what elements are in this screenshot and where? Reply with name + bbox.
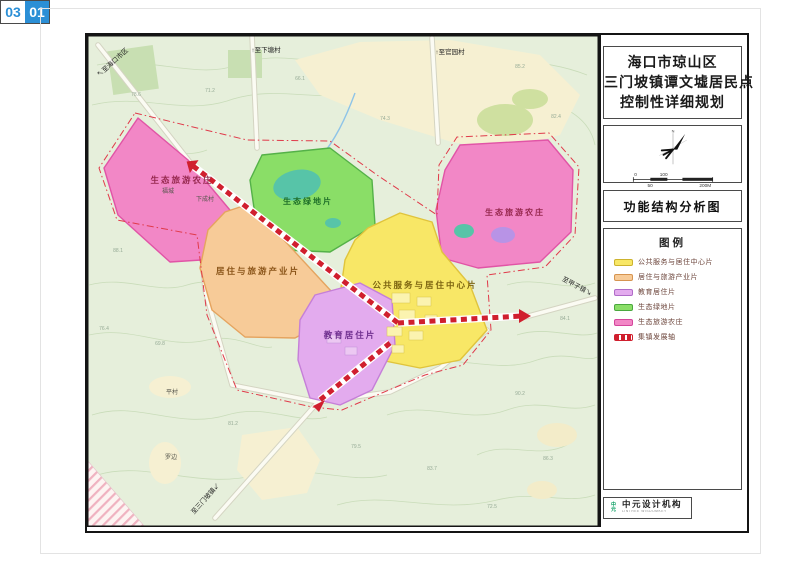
sheet-total: 03 [1,1,25,23]
svg-text:100: 100 [659,172,667,178]
scale-bar: 0 100 50 200M [625,171,721,188]
title-line-3: 控制性详细规划 [604,94,741,114]
village-label: 罗边 [165,453,177,461]
district-eco-farm-east [436,140,573,268]
elev-label: 71.2 [205,88,215,94]
elev-label: 76.4 [99,326,109,332]
legend-area-swatch [614,289,633,296]
elev-label: 90.2 [515,391,525,397]
legend-title: 图例 [604,235,741,250]
title-block: 海口市琼山区 三门坡镇谭文墟居民点 控制性详细规划 [603,46,742,119]
legend-area-swatch [614,304,633,311]
publisher-mark: 中元 [611,503,616,513]
road-label: ↑至下塘村 [251,45,281,54]
legend-item: 集镇发展轴 [614,333,741,341]
legend-item-label: 集镇发展轴 [638,332,676,342]
svg-text:50: 50 [647,183,653,188]
svg-text:200M: 200M [699,183,711,188]
elev-label: 83.7 [427,466,437,472]
drawing-name-box: 功能结构分析图 [603,190,742,222]
planning-map: 生态旅游农庄生态绿地片生态旅游农庄居住与旅游产业片公共服务与居住中心片教育居住片… [87,35,601,527]
elev-label: 88.1 [113,248,123,254]
elev-label: 84.1 [560,316,570,322]
region-label: 生态旅游农庄 [150,175,213,185]
legend-item: 生态绿地片 [614,303,741,311]
svg-text:N: N [671,128,674,133]
region-label: 居住与旅游产业片 [215,266,300,276]
legend-item: 教育居住片 [614,288,741,296]
village-label: 下成村 [196,195,214,203]
elev-label: 78.6 [131,92,141,98]
legend-axis-swatch [614,334,633,341]
drawing-name: 功能结构分析图 [623,198,721,215]
elev-label: 79.5 [351,444,361,450]
legend-area-swatch [614,319,633,326]
village-label: 福城 [162,187,174,195]
legend-item-label: 居住与旅游产业片 [638,272,698,282]
legend-item: 公共服务与居住中心片 [614,258,741,266]
map-canvas: 生态旅游农庄生态绿地片生态旅游农庄居住与旅游产业片公共服务与居住中心片教育居住片… [87,35,599,527]
elev-label: 85.2 [515,64,525,70]
publisher-subtitle: LINTREE WISDOMKEY [622,510,667,513]
legend-item-label: 生态绿地片 [638,302,676,312]
legend-item-label: 公共服务与居住中心片 [638,257,713,267]
svg-text:0: 0 [634,172,637,178]
compass-box: N 0 100 50 200M [603,125,742,183]
legend: 图例 公共服务与居住中心片居住与旅游产业片教育居住片生态绿地片生态旅游农庄集镇发… [603,228,742,490]
elev-label: 66.1 [295,76,305,82]
region-label: 公共服务与居住中心片 [372,280,477,290]
elev-label: 82.4 [551,114,561,120]
village-label: 平村 [166,388,178,396]
region-label: 生态旅游农庄 [485,207,545,217]
elev-label: 72.5 [487,504,497,510]
region-label: 生态绿地片 [283,196,333,206]
north-arrow-icon: N [653,128,693,166]
publisher-name: 中元设计机构 [622,500,682,509]
legend-items: 公共服务与居住中心片居住与旅游产业片教育居住片生态绿地片生态旅游农庄集镇发展轴 [604,258,741,341]
road-label: ↑至官园村 [435,47,465,56]
elev-label: 86.3 [543,456,553,462]
legend-item: 居住与旅游产业片 [614,273,741,281]
region-label: 教育居住片 [323,330,377,340]
title-line-1: 海口市琼山区 [604,54,741,74]
legend-item-label: 教育居住片 [638,287,676,297]
publisher-box: 中元 中元设计机构 LINTREE WISDOMKEY [603,497,692,519]
elev-label: 74.3 [380,116,390,122]
legend-item: 生态旅游农庄 [614,318,741,326]
legend-item-label: 生态旅游农庄 [638,317,683,327]
elev-label: 81.2 [228,421,238,427]
elev-label: 69.8 [155,341,165,347]
legend-area-swatch [614,259,633,266]
legend-area-swatch [614,274,633,281]
title-line-2: 三门坡镇谭文墟居民点 [604,74,741,94]
